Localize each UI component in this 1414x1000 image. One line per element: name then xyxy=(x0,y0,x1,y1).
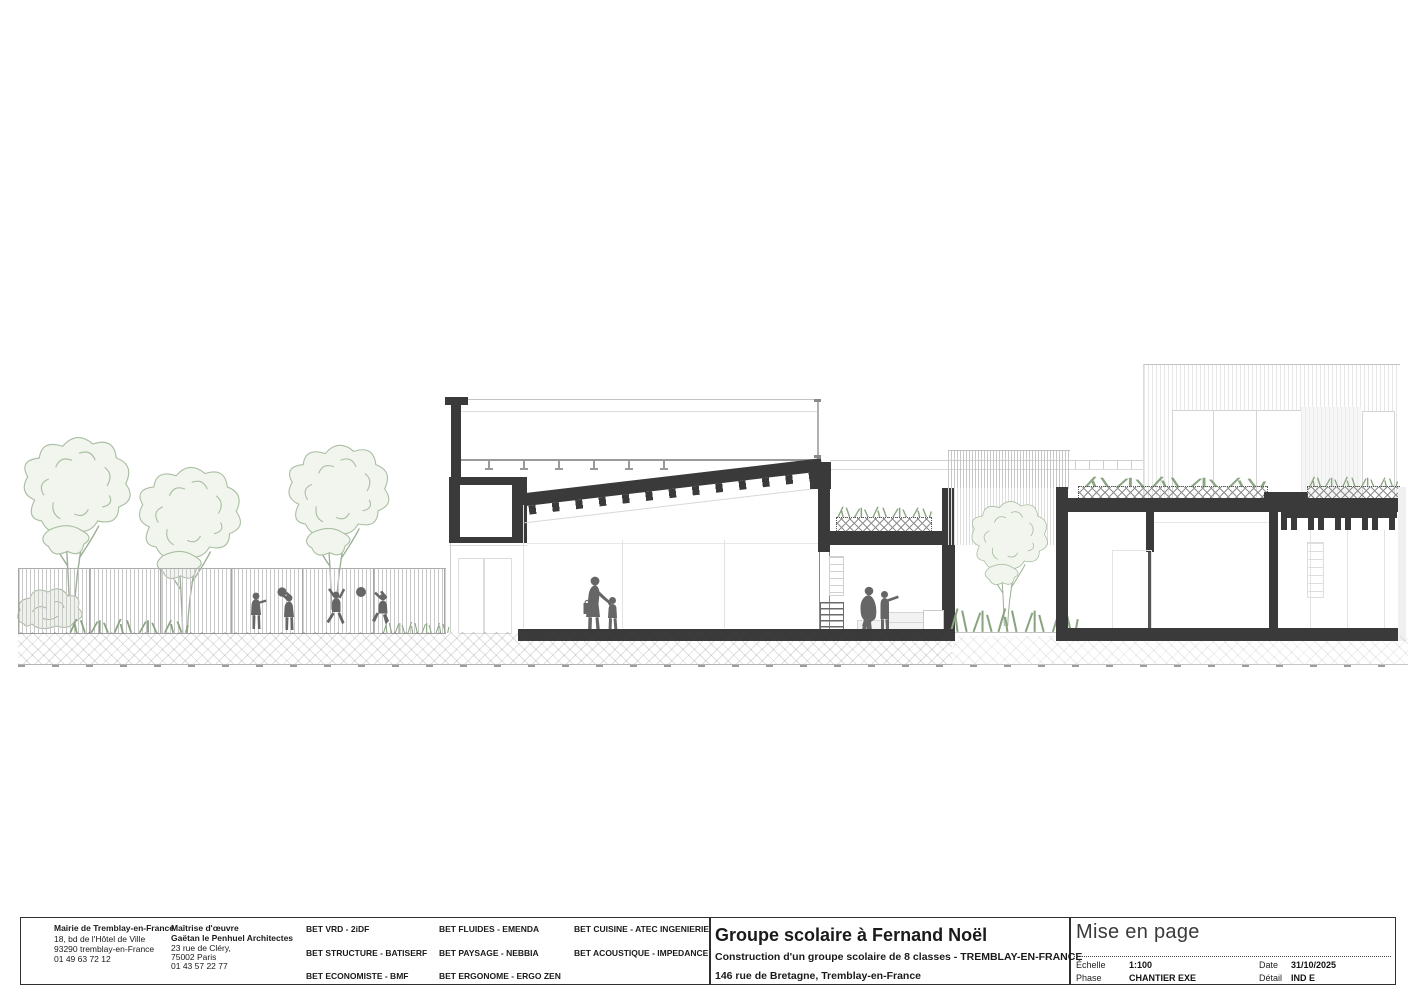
moe-phone: 01 43 57 22 77 xyxy=(171,961,228,971)
pergola-posts xyxy=(1281,518,1397,530)
moe-name: Gaëtan le Penhuel Architectes xyxy=(171,933,293,943)
project-subtitle: Construction d'un groupe scolaire de 8 c… xyxy=(715,951,1082,963)
middle-roof-beam xyxy=(818,531,955,545)
clerestory-end-mullion xyxy=(817,399,819,461)
bet-cuisine: BET CUISINE - ATEC INGENIERIE xyxy=(574,924,709,934)
detail-value: IND E xyxy=(1291,973,1315,983)
squatting-adult-child-silhouettes xyxy=(858,586,906,632)
phase-label: Phase xyxy=(1076,973,1102,983)
storage-box xyxy=(923,610,944,630)
interior-partition-line-2 xyxy=(724,540,725,628)
title-block: Mairie de Tremblay-en-France 18, bd de l… xyxy=(20,917,1396,985)
wall-ladder xyxy=(829,556,844,596)
children-playing-silhouettes xyxy=(248,584,396,632)
ground-hatch-right xyxy=(952,636,1408,665)
window-box-opening xyxy=(460,485,512,537)
bet-paysage: BET PAYSAGE - NEBBIA xyxy=(439,948,539,958)
client-address1: 18, bd de l'Hôtel de Ville xyxy=(54,934,145,944)
interior-ceiling-line xyxy=(1154,522,1269,523)
right-mullion-3 xyxy=(1384,530,1385,628)
scale-value: 1:100 xyxy=(1129,960,1152,970)
lower-facade-top-line xyxy=(449,545,527,546)
bet-economiste: BET ECONOMISTE - BMF xyxy=(306,971,408,981)
clerestory-second-line xyxy=(461,411,818,412)
ground-hatch-left xyxy=(18,632,952,665)
railing-posts xyxy=(1075,461,1143,469)
clerestory-end-mark-top xyxy=(814,399,821,402)
right-center-column xyxy=(1269,512,1278,637)
interior-partition-line-1 xyxy=(622,540,623,628)
project-title: Groupe scolaire à Fernand Noël xyxy=(715,925,987,946)
interior-ladder-faint xyxy=(1307,542,1324,598)
right-edge-fade xyxy=(1398,487,1406,641)
right-left-wall xyxy=(1056,487,1068,637)
client-name: Mairie de Tremblay-en-France xyxy=(54,923,174,933)
ceiling-hanger-feet xyxy=(485,468,673,470)
pergola-rail xyxy=(1281,511,1397,518)
interior-partition-stub xyxy=(1146,512,1154,552)
bet-structure: BET STRUCTURE - BATISERF xyxy=(306,948,427,958)
roof-end-block xyxy=(810,462,831,489)
lower-facade-door-1 xyxy=(458,558,485,634)
green-roof-grass-middle xyxy=(833,503,933,518)
project-address: 146 rue de Bretagne, Tremblay-en-France xyxy=(715,970,921,982)
lower-facade-door-2 xyxy=(483,558,512,634)
detail-label: Détail xyxy=(1259,973,1282,983)
ground-base-dashes xyxy=(18,665,1408,667)
date-value: 31/10/2025 xyxy=(1291,960,1336,970)
phase-value: CHANTIER EXE xyxy=(1129,973,1196,983)
shelf-stack xyxy=(820,602,844,630)
scale-label: Échelle xyxy=(1076,960,1106,970)
adult-child-silhouettes xyxy=(582,576,622,633)
date-label: Date xyxy=(1259,960,1278,970)
moe-role: Maîtrise d'œuvre xyxy=(171,923,239,933)
interior-door-outline xyxy=(1112,550,1152,630)
interior-back-line xyxy=(527,543,818,544)
clerestory-screen-upper xyxy=(948,450,1070,489)
client-phone: 01 49 63 72 12 xyxy=(54,954,111,964)
right-roof-beam xyxy=(1056,498,1398,512)
clerestory-top-line xyxy=(461,399,818,400)
right-mullion-2 xyxy=(1347,530,1348,628)
bet-ergonome: BET ERGONOME - ERGO ZEN xyxy=(439,971,561,981)
interior-glazing-line-1 xyxy=(523,505,524,628)
title-block-divider-1 xyxy=(709,918,711,984)
bet-fluides: BET FLUIDES - EMENDA xyxy=(439,924,539,934)
drawing-sheet: Mairie de Tremblay-en-France 18, bd de l… xyxy=(0,0,1414,1000)
sheet-name: Mise en page xyxy=(1076,921,1200,944)
grass-fence-base xyxy=(64,614,190,634)
client-address2: 93290 tremblay-en-France xyxy=(54,944,154,954)
lower-facade-edge xyxy=(450,543,451,632)
bet-acoustique: BET ACOUSTIQUE - IMPEDANCE xyxy=(574,948,708,958)
courtyard-ground-line xyxy=(955,632,1068,633)
sheet-info-separator xyxy=(1074,956,1391,957)
bet-vrd: BET VRD - 2iDF xyxy=(306,924,369,934)
